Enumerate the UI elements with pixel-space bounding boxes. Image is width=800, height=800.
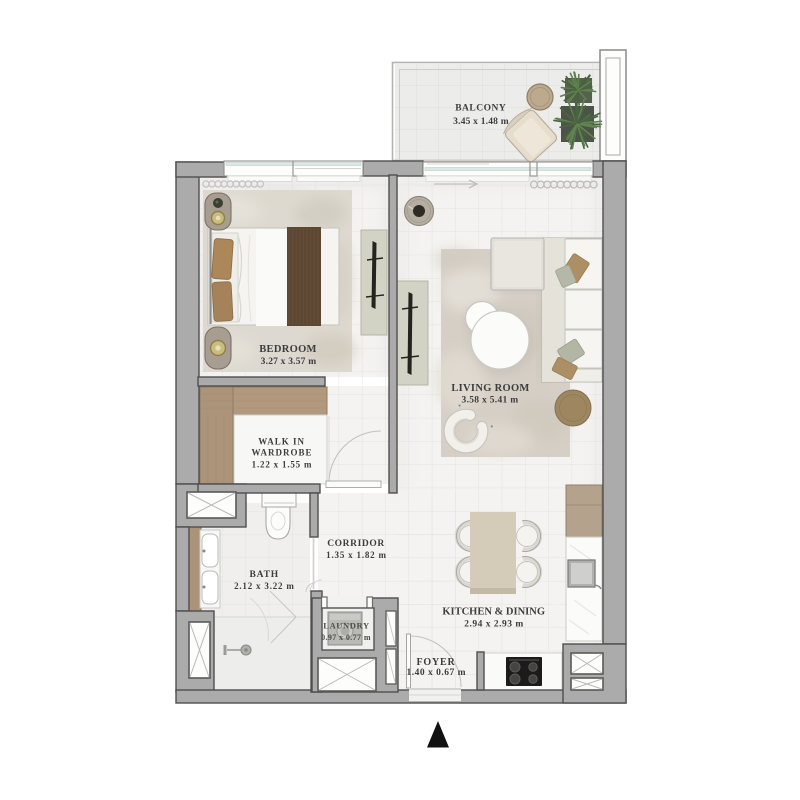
svg-text:BALCONY: BALCONY	[455, 104, 506, 114]
svg-text:2.12 x 3.22 m: 2.12 x 3.22 m	[234, 581, 295, 591]
svg-text:BATH: BATH	[249, 570, 278, 580]
svg-text:BEDROOM: BEDROOM	[259, 344, 317, 355]
svg-text:LIVING ROOM: LIVING ROOM	[451, 383, 529, 394]
svg-text:LAUNDRY: LAUNDRY	[323, 621, 369, 631]
svg-text:3.58 x 5.41 m: 3.58 x 5.41 m	[462, 396, 519, 406]
svg-text:WARDROBE: WARDROBE	[251, 448, 312, 458]
svg-text:WALK IN: WALK IN	[258, 437, 305, 447]
svg-text:1.22 x 1.55 m: 1.22 x 1.55 m	[252, 460, 313, 470]
svg-text:1.35 x 1.82 m: 1.35 x 1.82 m	[326, 550, 387, 560]
svg-text:0.97 x 0.77 m: 0.97 x 0.77 m	[321, 633, 371, 642]
svg-text:CORRIDOR: CORRIDOR	[327, 539, 385, 549]
svg-text:1.40 x 0.67 m: 1.40 x 0.67 m	[407, 668, 467, 678]
svg-text:KITCHEN & DINING: KITCHEN & DINING	[442, 607, 545, 618]
svg-text:FOYER: FOYER	[417, 657, 456, 668]
svg-text:2.94 x 2.93 m: 2.94 x 2.93 m	[464, 620, 524, 630]
svg-text:3.27 x 3.57 m: 3.27 x 3.57 m	[261, 357, 317, 367]
svg-text:3.45 x 1.48 m: 3.45 x 1.48 m	[453, 117, 509, 127]
